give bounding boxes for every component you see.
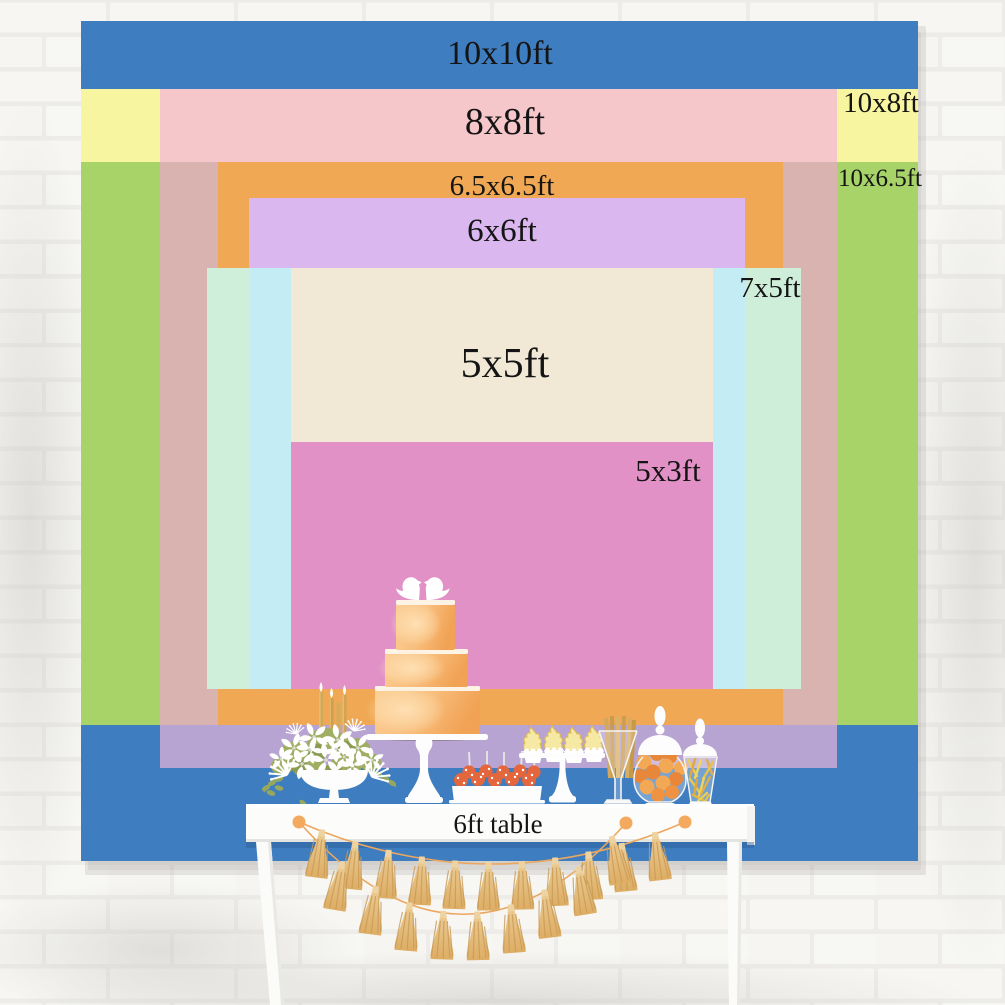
- svg-text:7x5ft: 7x5ft: [739, 272, 800, 304]
- svg-text:6.5x6.5ft: 6.5x6.5ft: [450, 170, 555, 202]
- svg-text:5x3ft: 5x3ft: [635, 453, 701, 488]
- svg-text:5x5ft: 5x5ft: [461, 341, 550, 387]
- svg-text:10x8ft: 10x8ft: [843, 87, 919, 119]
- svg-text:6ft table: 6ft table: [453, 809, 542, 839]
- svg-text:10x6.5ft: 10x6.5ft: [838, 165, 922, 192]
- svg-text:6x6ft: 6x6ft: [467, 213, 537, 249]
- svg-text:8x8ft: 8x8ft: [465, 101, 546, 143]
- svg-text:10x10ft: 10x10ft: [447, 35, 553, 72]
